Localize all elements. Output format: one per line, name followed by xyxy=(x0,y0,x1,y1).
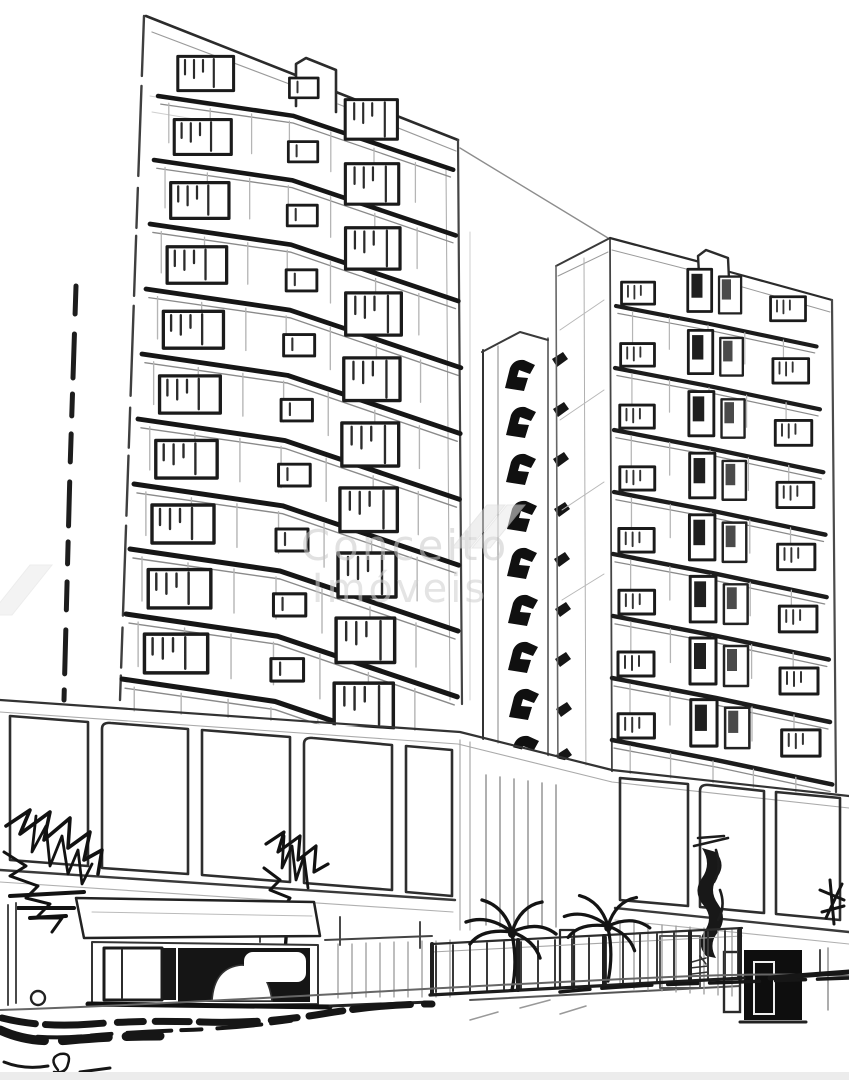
watermark-line1: Conceito xyxy=(301,521,509,570)
sketch-root: Conceito Imóveis xyxy=(0,0,849,1080)
awning xyxy=(76,898,320,938)
sketch-canvas: Conceito Imóveis xyxy=(0,0,849,1080)
watermark-line2: Imóveis xyxy=(312,566,488,612)
